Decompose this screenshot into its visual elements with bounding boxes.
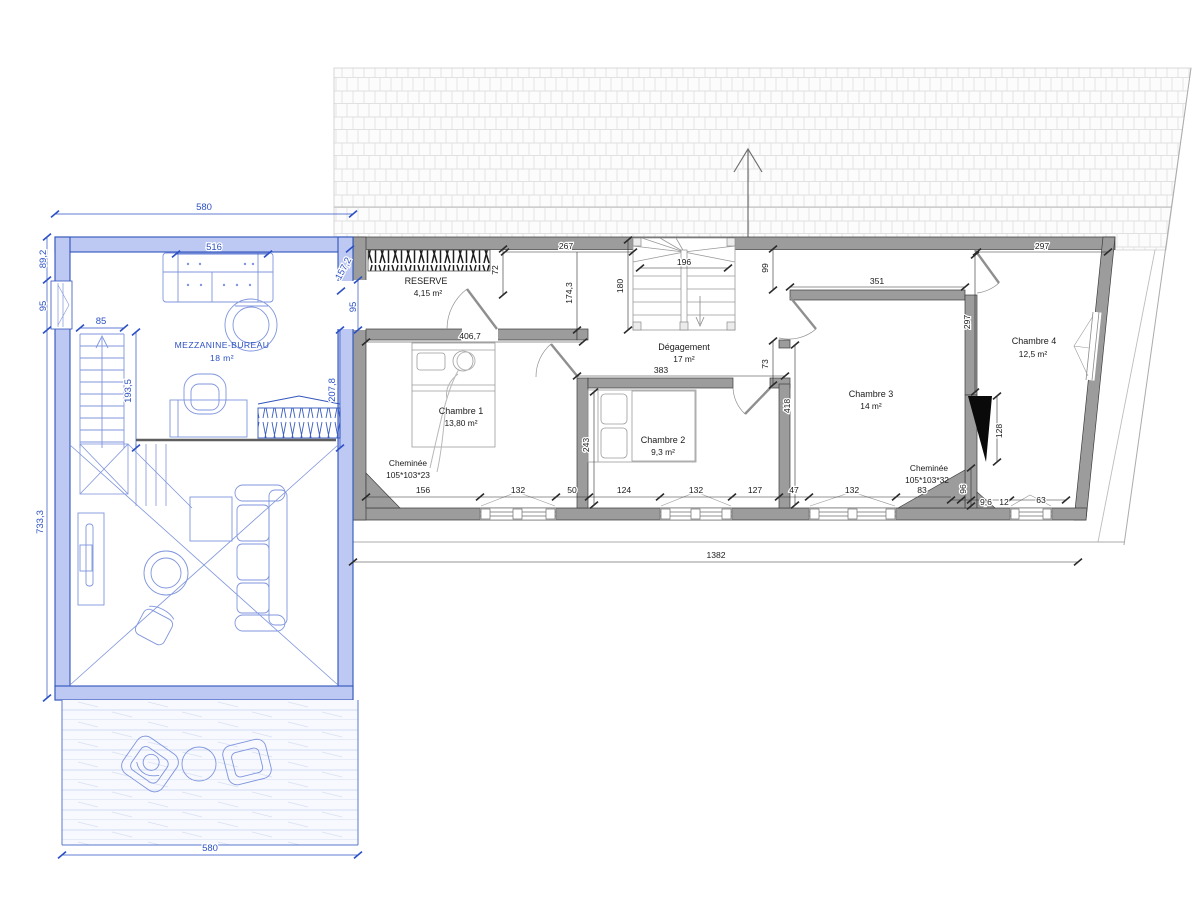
dim-351: 351 [870,276,885,286]
dim-180: 180 [615,279,625,294]
terrace [62,700,358,845]
dim-bottom-9: 9,6 [980,497,992,507]
dim-mezz-window: 95 [38,301,49,312]
dim-99: 99 [760,263,770,273]
dim-bottom-4: 132 [689,485,704,495]
dim-73: 73 [760,359,770,369]
dim-243: 243 [581,438,591,453]
room-area-mezzanine: 18 m² [210,353,234,363]
room-area-chambre-1: 13,80 m² [444,418,477,428]
wall-ch2-north [588,378,733,388]
mezz-wall-bottom [55,686,353,700]
room-label-chambre-3: Chambre 3 [849,389,894,399]
dim-mezz-height: 733,3 [35,510,46,534]
sofa-icon [163,253,273,302]
desk-chair-icon [184,374,226,414]
dim-bottom-6: 47 [789,485,799,495]
room-label-chambre-1: Chambre 1 [439,406,484,416]
dim-mezz-89: 89,2 [38,250,49,269]
room-label-chambre-2: Chambre 2 [641,435,686,445]
room-area-chambre-3: 14 m² [860,401,882,411]
stairwell [633,238,735,330]
dim-passage: 95 [348,302,359,313]
window-icon-mezz-left [51,281,72,329]
dim-bottom-7: 132 [845,485,860,495]
dim-128: 128 [994,424,1004,439]
room-label-chambre-4: Chambre 4 [1012,336,1057,346]
fireplace-label-left: Cheminée [389,458,428,468]
dim-mezz-width-top: 580 [196,202,212,213]
tub-chair-lower-icon [144,551,188,595]
room-area-chambre-2: 9,3 m² [651,447,675,457]
room-area-degagement: 17 m² [673,354,695,364]
dim-418: 418 [782,399,792,414]
dim-96: 96 [958,484,968,494]
dim-267: 267 [559,241,574,251]
stairs-up-icon [80,334,124,448]
coffee-table-icon [190,497,232,541]
roof-tiles [334,68,1191,250]
floor-plan-canvas: 580 89,2 95 733,3 516 157,2 95 85 193,5 … [0,0,1200,900]
room-label-degagement: Dégagement [658,342,710,352]
dim-174: 174,3 [564,282,574,304]
mezzanine-block [51,237,354,700]
dim-383: 383 [654,365,669,375]
fireplace-size-left: 105*103*23 [386,470,430,480]
dim-sofa: 516 [206,242,222,253]
dim-72: 72 [490,265,500,275]
dim-bottom-1: 132 [511,485,526,495]
dim-297h: 297 [1035,241,1050,251]
wall-ch3-north [790,290,965,300]
sofa-lower-icon [235,485,287,631]
dim-stair-height: 193,5 [123,379,134,403]
dim-terrace: 580 [202,843,218,854]
void-cross [70,444,338,685]
fireplace-label-right: Cheminée [910,463,949,473]
dim-stair-width: 85 [96,316,107,327]
dim-297v: 297 [962,315,972,330]
desk-icon [170,400,247,437]
closet-reserve [368,250,490,271]
dim-bottom-11: 63 [1036,495,1046,505]
wall-corridor-stub [779,340,790,348]
dim-bottom-8: 83 [917,485,927,495]
dim-bottom-10: 12 [999,497,1009,507]
dim-bottom-5: 127 [748,485,763,495]
floor-plan-page: 580 89,2 95 733,3 516 157,2 95 85 193,5 … [0,0,1200,900]
dim-bottom-3: 124 [617,485,632,495]
mezz-wall-top [55,237,353,252]
dim-bottom-2: 50 [567,485,577,495]
tv-unit-icon [78,513,104,605]
room-area-chambre-4: 12,5 m² [1019,349,1048,359]
dim-196: 196 [677,257,692,267]
room-label-reserve: RESERVE [405,276,448,286]
room-area-reserve: 4,15 m² [414,288,443,298]
dim-office-depth: 207,8 [327,378,338,402]
fireplace-size-right: 105*103*32 [905,475,949,485]
dim-total: 1382 [706,550,725,560]
dim-406: 406,7 [459,331,481,341]
dim-bottom-0: 156 [416,485,431,495]
room-label-mezzanine: MEZZANINE-BUREAU [175,340,270,350]
